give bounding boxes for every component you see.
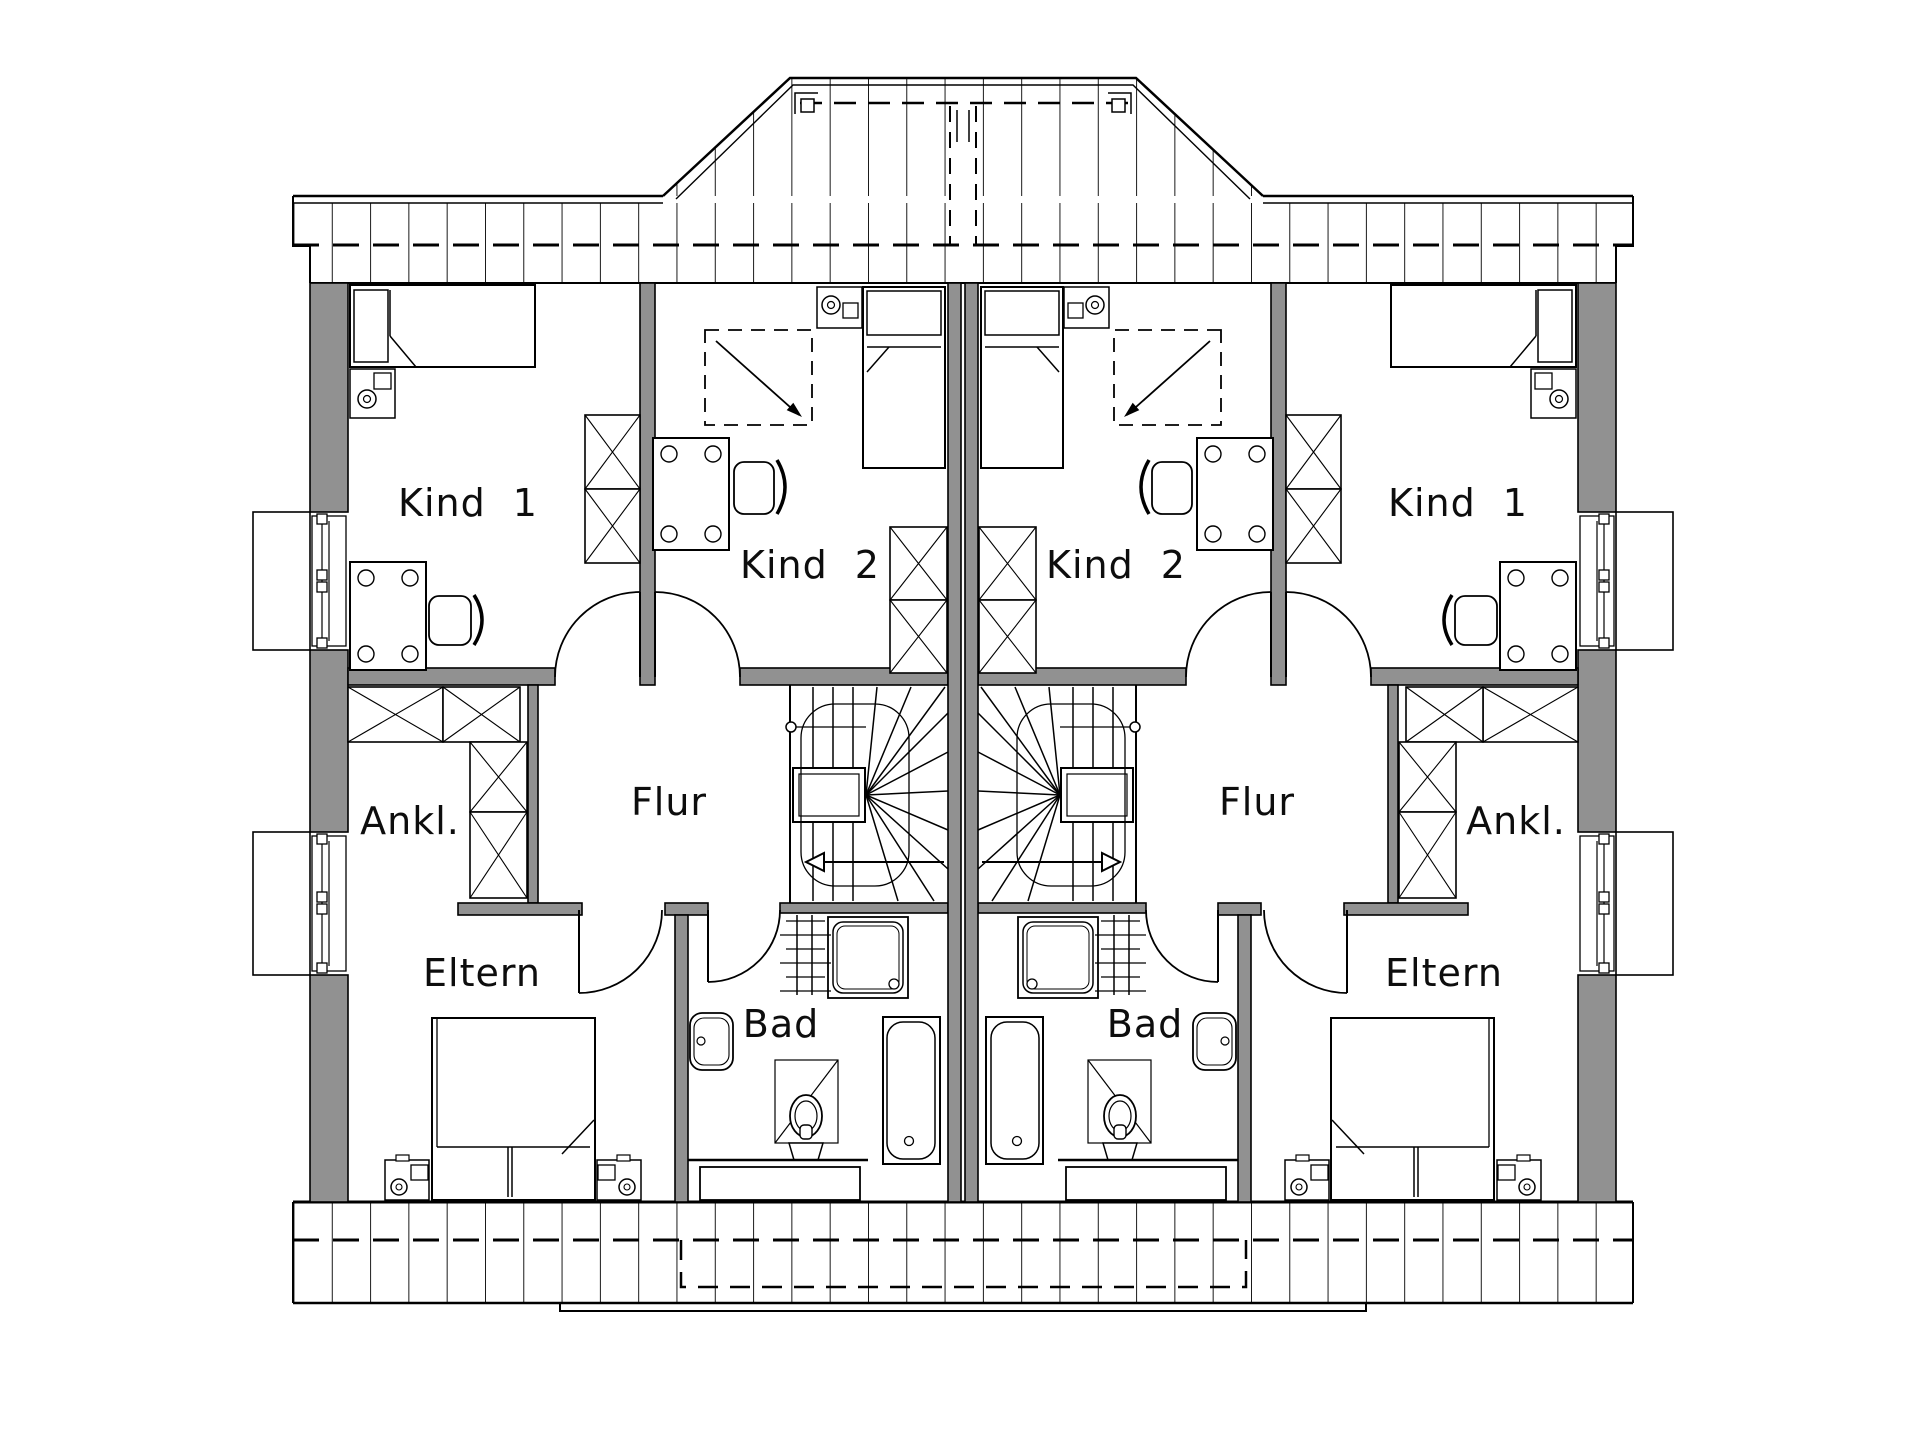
room-label-ankl-right: Ankl. <box>1466 799 1566 843</box>
floor-plan-page: Kind 1 Kind 2 Flur Ankl. Eltern Bad Kind… <box>0 0 1921 1441</box>
room-label-bad-right: Bad <box>1107 1002 1183 1046</box>
room-label-kind1-right: Kind 1 <box>1388 481 1528 525</box>
room-label-flur-left: Flur <box>631 780 707 824</box>
room-label-kind2-left: Kind 2 <box>740 543 880 587</box>
room-label-bad-left: Bad <box>743 1002 819 1046</box>
room-label-flur-right: Flur <box>1219 780 1295 824</box>
room-label-eltern-right: Eltern <box>1385 951 1503 995</box>
roof-band-bottom <box>293 1202 1633 1311</box>
room-label-kind2-right: Kind 2 <box>1046 543 1186 587</box>
room-label-ankl-left: Ankl. <box>360 799 460 843</box>
floor-plan-drawing: Kind 1 Kind 2 Flur Ankl. Eltern Bad Kind… <box>0 0 1921 1441</box>
room-label-kind1-left: Kind 1 <box>398 481 538 525</box>
room-label-eltern-left: Eltern <box>423 951 541 995</box>
